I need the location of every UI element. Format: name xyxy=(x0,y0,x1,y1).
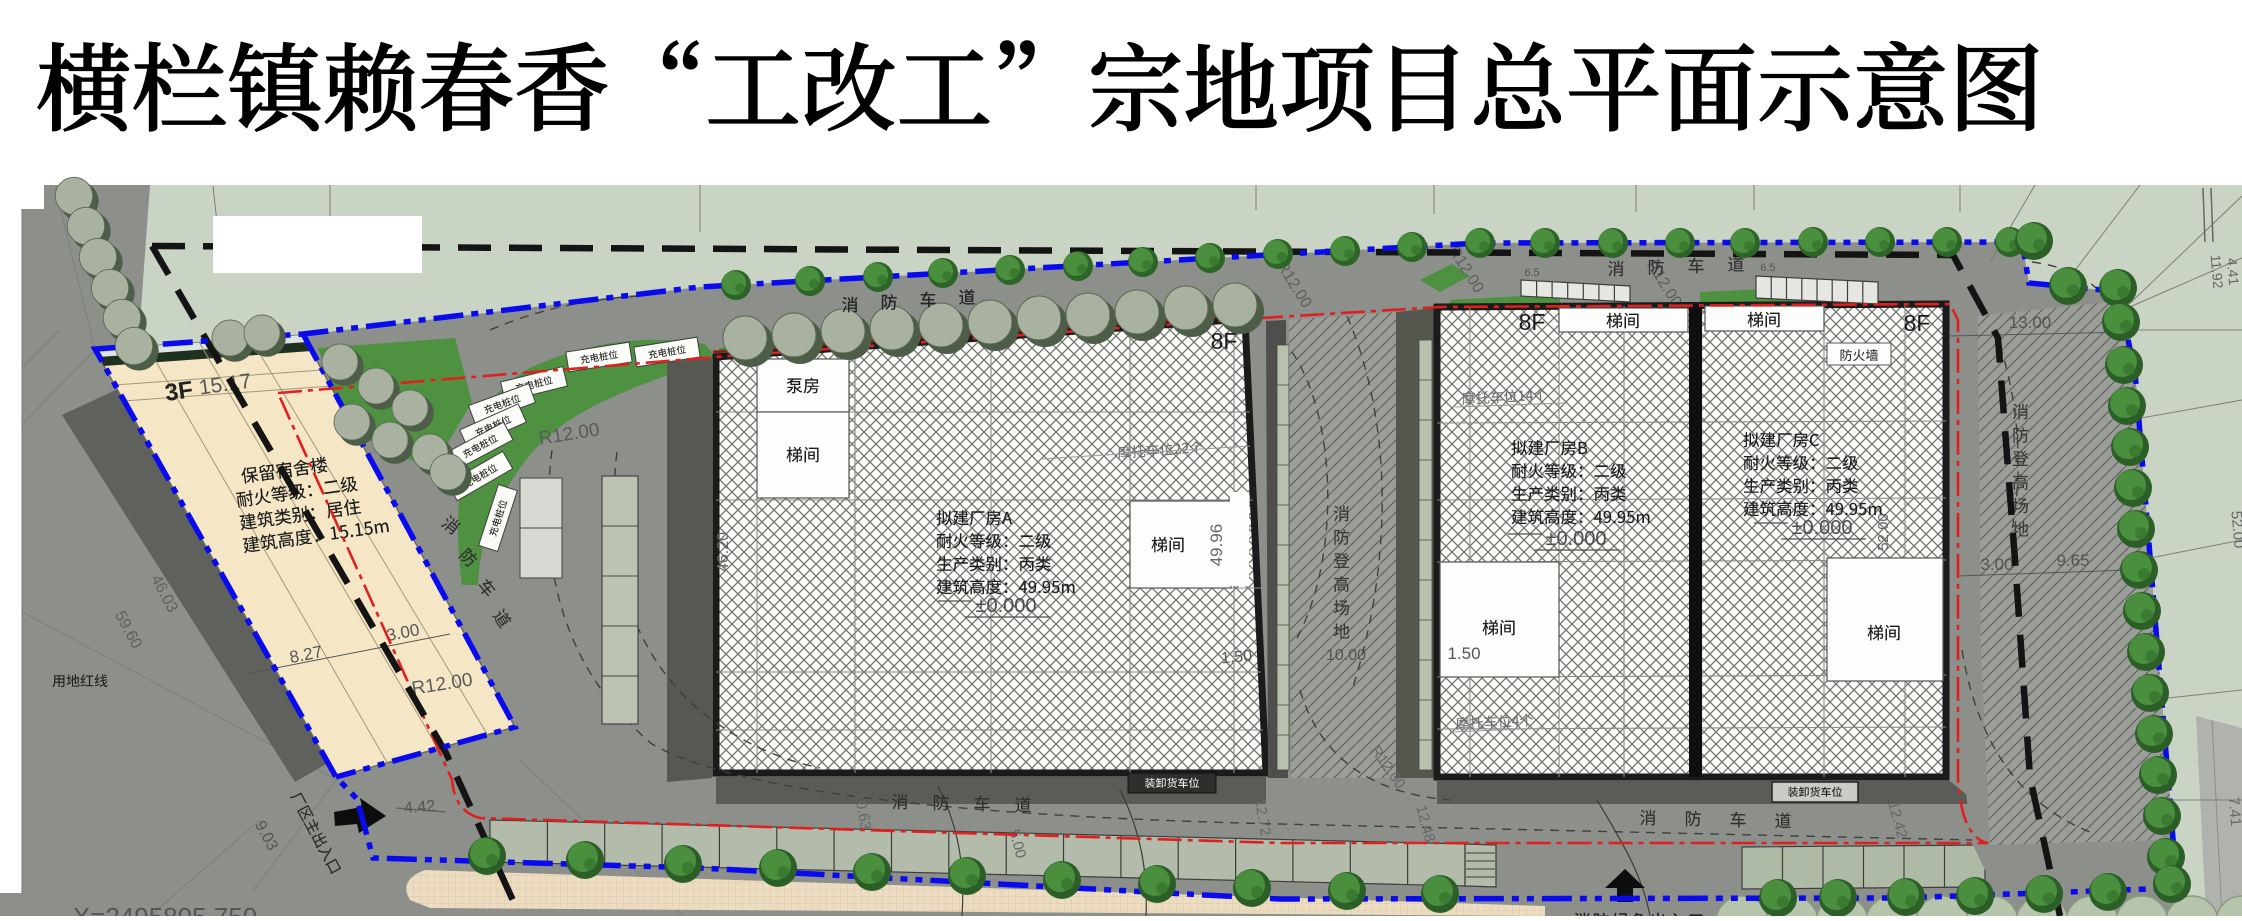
svg-text:X=2495805.750: X=2495805.750 xyxy=(73,902,257,916)
svg-text:1.50: 1.50 xyxy=(1220,648,1253,668)
svg-text:13.00: 13.00 xyxy=(2009,313,2052,332)
svg-text:±0.000: ±0.000 xyxy=(1545,528,1606,550)
svg-text:11.92: 11.92 xyxy=(2208,254,2227,289)
svg-text:1.50: 1.50 xyxy=(1447,644,1480,663)
svg-text:7.41: 7.41 xyxy=(2225,796,2242,827)
svg-text:±0.000: ±0.000 xyxy=(975,595,1036,617)
svg-text:3F: 3F xyxy=(163,376,195,407)
svg-text:6.5: 6.5 xyxy=(1760,262,1775,274)
svg-text:8F: 8F xyxy=(1519,309,1546,335)
svg-text:52.00: 52.00 xyxy=(1875,513,1892,551)
svg-text:9.65: 9.65 xyxy=(2056,551,2089,570)
svg-text:±0.000: ±0.000 xyxy=(1791,517,1852,539)
svg-text:6.5: 6.5 xyxy=(1524,267,1539,279)
svg-text:4.42: 4.42 xyxy=(404,798,436,817)
svg-text:46.20: 46.20 xyxy=(715,532,732,572)
svg-text:8F: 8F xyxy=(1904,310,1931,336)
svg-text:3.00: 3.00 xyxy=(1980,555,2013,574)
svg-text:49.96: 49.96 xyxy=(1207,524,1226,567)
svg-text:4.41: 4.41 xyxy=(2224,257,2242,286)
